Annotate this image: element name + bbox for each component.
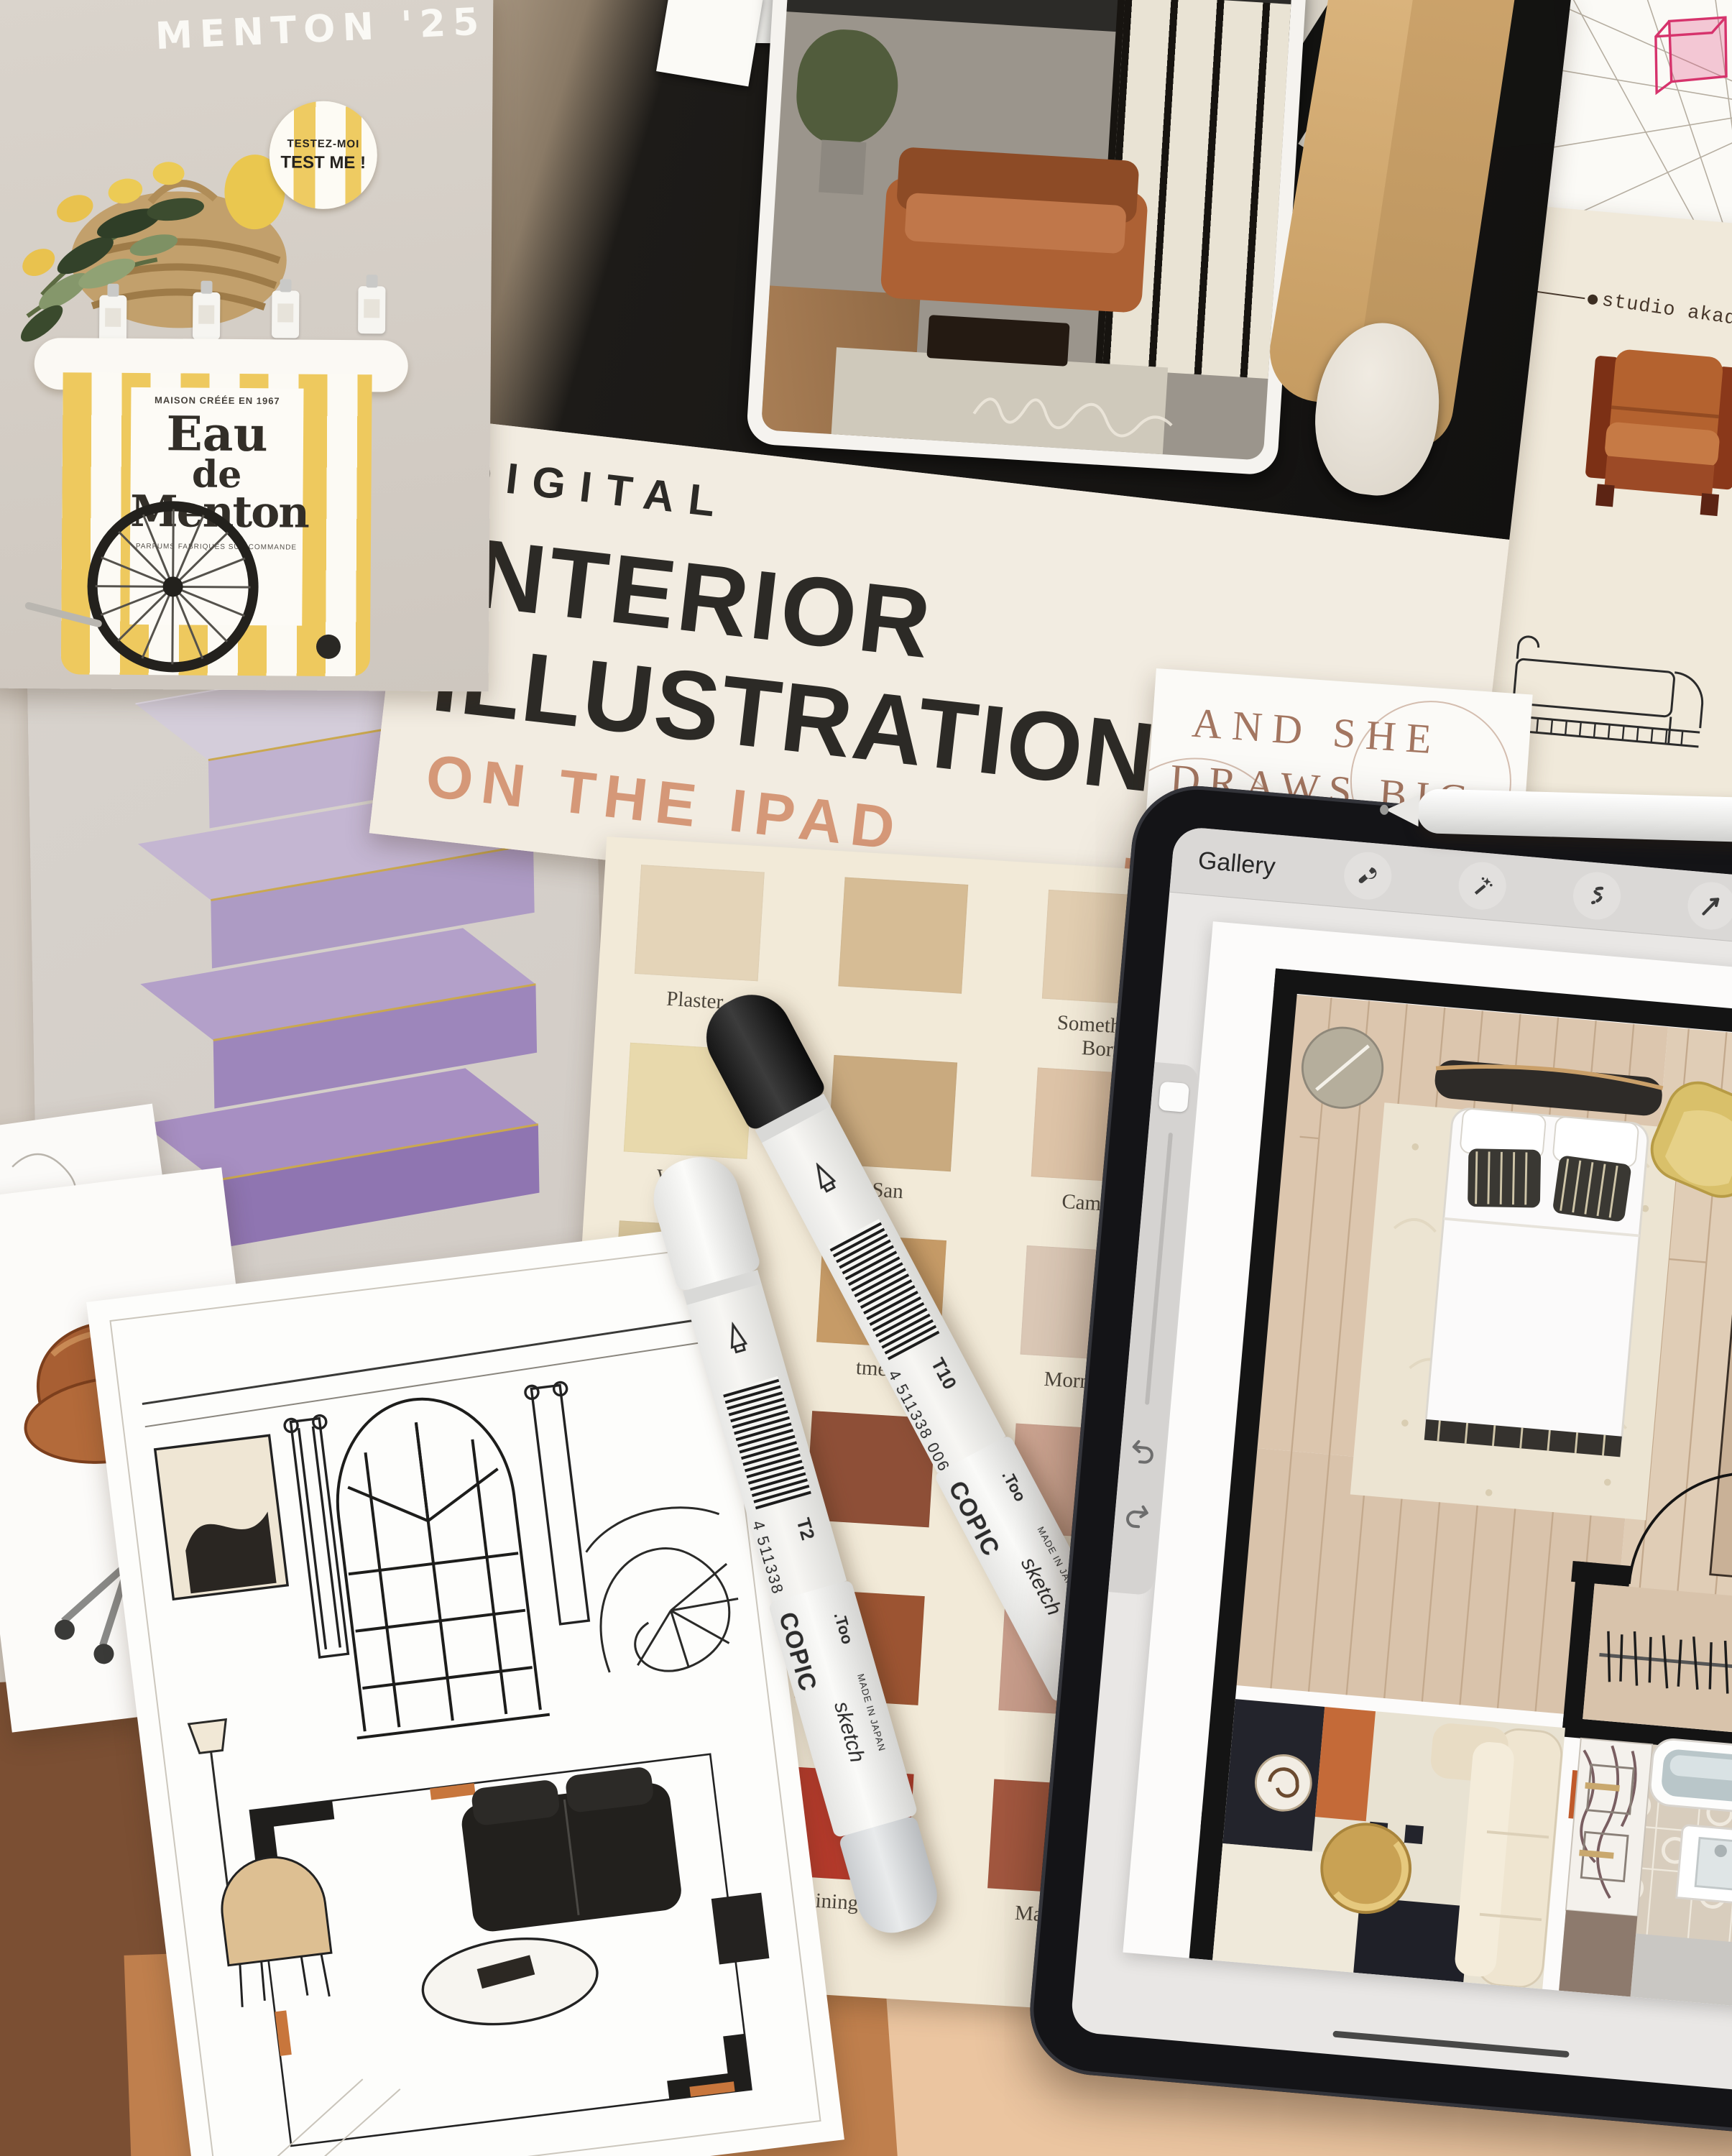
sign-line2: TEST ME ! (280, 152, 366, 173)
procreate-screen: Gallery (1070, 826, 1732, 2095)
coffee-table (926, 315, 1069, 367)
procreate-canvas[interactable] (1123, 921, 1732, 2014)
selection-icon[interactable] (1571, 870, 1623, 922)
swatch-cell (834, 877, 968, 1063)
studio-label: studio akademos (1600, 290, 1732, 338)
sign-line1: TESTEZ-MOI (287, 137, 359, 150)
adjustments-magic-wand-icon[interactable] (1457, 860, 1508, 912)
home-indicator[interactable] (1332, 2031, 1570, 2058)
undo-icon[interactable] (1126, 1435, 1159, 1471)
transform-arrow-icon[interactable] (1686, 880, 1732, 932)
flatlay-scene: MENTON '25 (0, 0, 1732, 2156)
nib-icon (803, 1156, 844, 1198)
gallery-button[interactable]: Gallery (1197, 847, 1277, 881)
barcode (722, 1376, 811, 1509)
marker-code: T2 (792, 1516, 819, 1543)
perfume-bottle (358, 286, 385, 333)
flyer-kicker: DIGITAL (458, 448, 732, 528)
floor-plan-illustration (1123, 921, 1732, 2014)
actions-wrench-icon[interactable] (1342, 850, 1394, 902)
swatch-label (837, 998, 961, 1005)
leather-sofa (880, 177, 1148, 313)
menton-postcard: MENTON '25 (0, 0, 493, 691)
sidebar-slider[interactable] (1145, 1133, 1173, 1405)
marker-maker: .Too (998, 1468, 1029, 1505)
plant (791, 27, 901, 197)
ipad: Gallery (1025, 780, 1732, 2140)
bullet-icon (1587, 294, 1598, 305)
swatch-color (838, 877, 968, 994)
cart-wheel (79, 478, 267, 681)
lemon-cart-illustration: TESTEZ-MOI TEST ME ! MAISON CRÉÉE EN 196… (11, 79, 446, 671)
nib-icon (719, 1318, 755, 1358)
sidebar-modify-button[interactable] (1158, 1082, 1189, 1112)
terracotta-armchair-illustration (1572, 333, 1732, 534)
fabric-swatch (656, 0, 764, 86)
lemon-basket-illustration (0, 122, 309, 361)
perfume-bottle (99, 295, 126, 343)
test-me-sign: TESTEZ-MOI TEST ME ! (269, 101, 377, 209)
marker-maker: .Too (830, 1611, 857, 1646)
perfume-bottle (272, 290, 299, 338)
menton-handwriting: MENTON '25 (155, 0, 487, 58)
redo-icon[interactable] (1120, 1499, 1153, 1535)
marker-series: sketch (829, 1699, 870, 1766)
cart-caster-wheel (316, 635, 341, 659)
marker-code: T10 (926, 1354, 961, 1393)
swatch-color (635, 865, 765, 981)
perfume-bottle (193, 292, 220, 340)
maison-line: MAISON CRÉÉE EN 1967 (131, 395, 303, 407)
